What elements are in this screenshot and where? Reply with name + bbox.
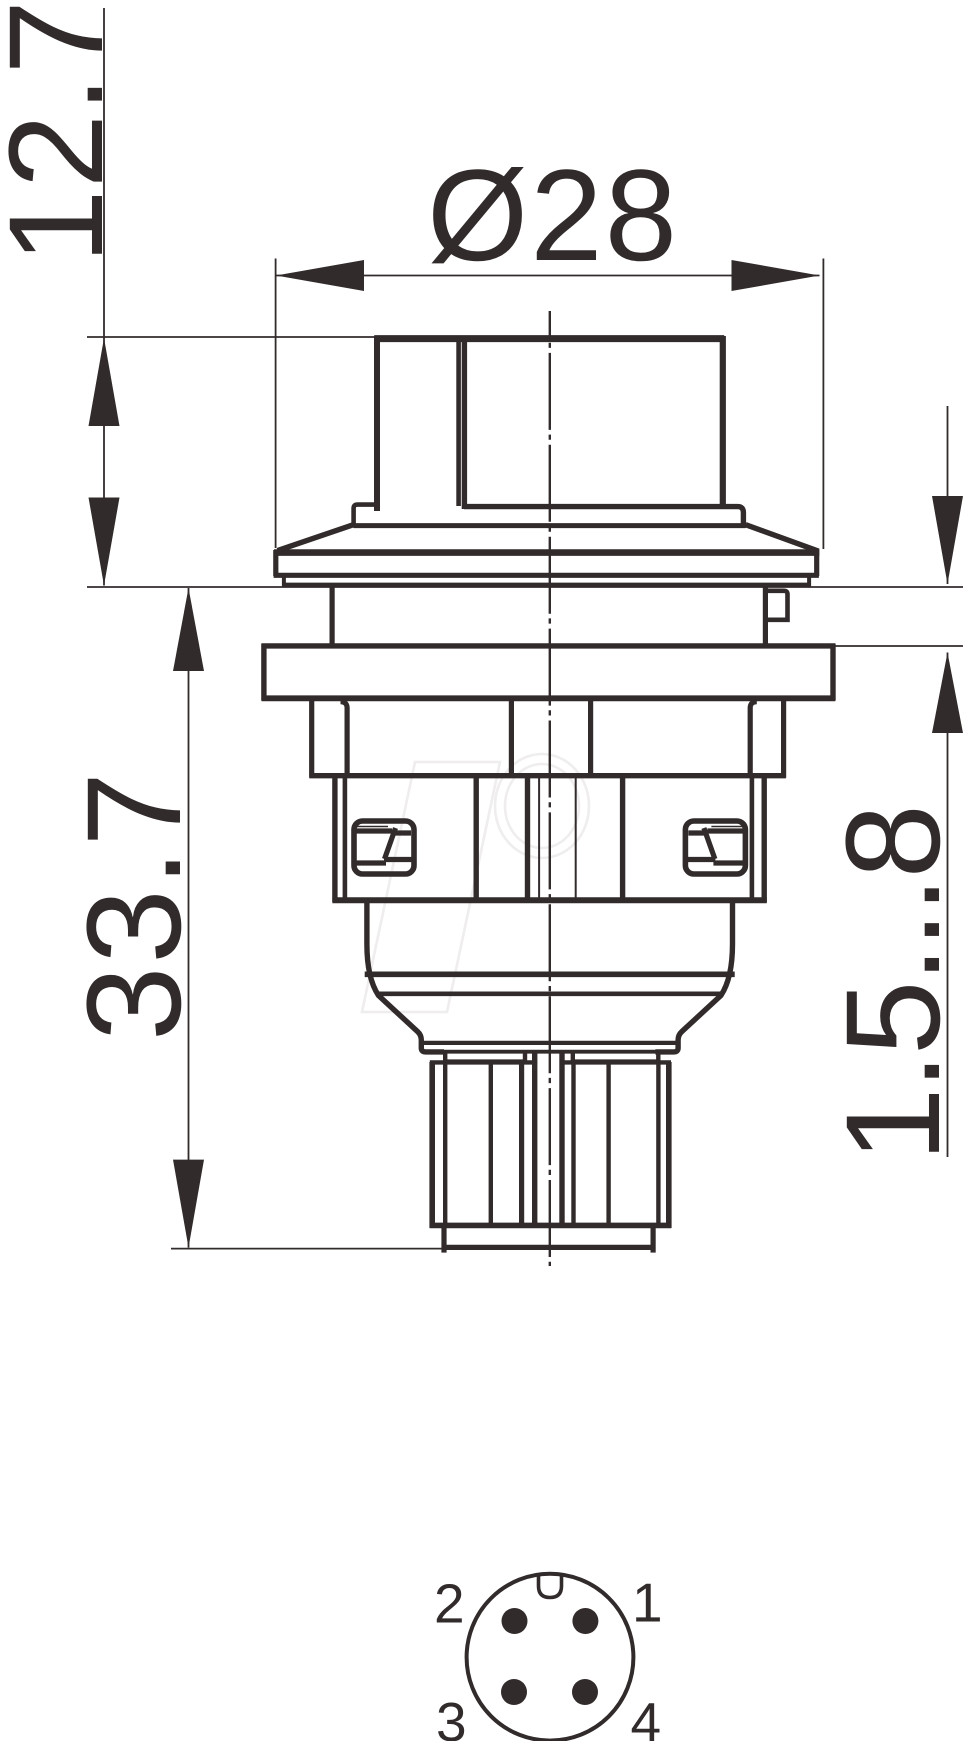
svg-text:1.5...8: 1.5...8 <box>819 804 963 1162</box>
svg-text:33.7: 33.7 <box>60 772 209 1041</box>
svg-text:Ø28: Ø28 <box>427 142 677 288</box>
svg-text:3: 3 <box>436 1691 467 1741</box>
svg-text:12.7: 12.7 <box>0 0 131 264</box>
svg-text:1: 1 <box>632 1572 663 1634</box>
svg-text:2: 2 <box>434 1573 465 1635</box>
svg-text:4: 4 <box>631 1691 662 1741</box>
